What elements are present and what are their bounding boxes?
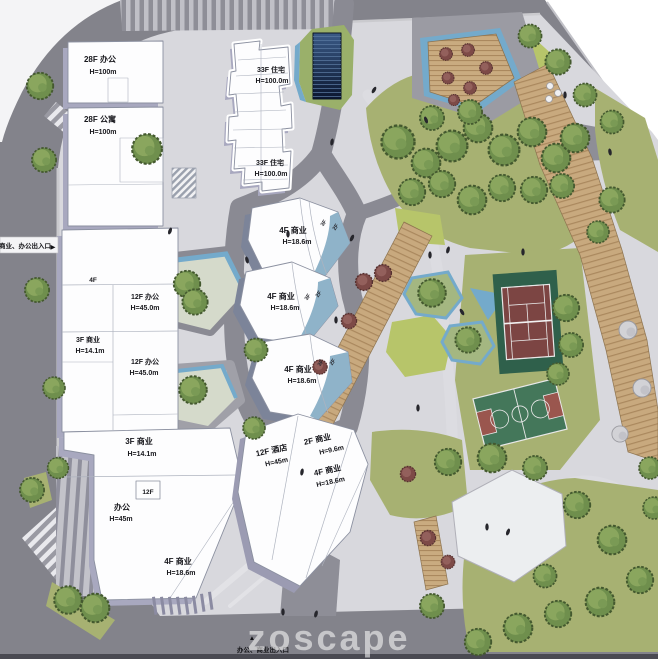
tree: [598, 526, 627, 555]
tree: [54, 586, 82, 614]
label-office-12f-b-line2: H=45.0m: [130, 370, 159, 377]
rock-cluster: [633, 379, 651, 397]
maroon-tree: [448, 94, 459, 105]
label-retail-hex-b-line2: H=18.6m: [271, 305, 300, 312]
glass-louvers: [313, 33, 341, 99]
tree: [564, 492, 590, 518]
tree: [533, 564, 556, 587]
tree: [437, 131, 468, 162]
tree: [244, 338, 267, 361]
tree: [478, 444, 507, 473]
master-plan-page: 28F 办公 H=100m 28F 公寓 H=100m 33F 住宅 H=100…: [0, 0, 658, 659]
label-apartment-28f-line2: H=100m: [89, 129, 116, 136]
label-office-28f-line2: H=100m: [89, 69, 116, 76]
label-retail-4f-south-line1: 4F 商业: [164, 556, 192, 566]
tree: [81, 594, 110, 623]
tree: [550, 174, 574, 198]
tree: [489, 135, 520, 166]
maroon-tree: [441, 555, 455, 569]
tree: [518, 24, 541, 47]
tree: [489, 175, 515, 201]
tree: [418, 279, 446, 307]
maroon-tree: [480, 62, 493, 75]
label-residential-33f-b-line2: H=100.0m: [255, 171, 288, 178]
label-retail-3f-b-line2: H=14.1m: [128, 451, 157, 458]
tree: [382, 126, 415, 159]
tree: [25, 278, 49, 302]
maroon-tree: [375, 265, 392, 282]
maroon-tree: [462, 44, 475, 57]
building-podium-офисы: [57, 228, 178, 438]
top-road-sidewalk-hatch: [120, 0, 345, 31]
label-retail-hex-c-line1: 4F 商业: [284, 364, 312, 374]
label-retail-hex-a-line1: 4F 商业: [279, 225, 307, 235]
tree: [458, 100, 482, 124]
label-retail-4f-south-line2: H=18.6m: [167, 570, 196, 577]
tree: [458, 186, 487, 215]
label-retail-hex-c-line2: H=18.6m: [288, 378, 317, 385]
label-retail-hex-b-line1: 4F 商业: [267, 291, 295, 301]
tree: [518, 118, 547, 147]
rock-cluster: [619, 321, 637, 339]
label-retail-3f-a-line2: H=14.1m: [76, 348, 105, 355]
maroon-tree: [440, 48, 453, 61]
building-apartment-28f: [63, 107, 163, 232]
label-residential-33f-a-line1: 33F 住宅: [257, 65, 285, 74]
label-retail-3f-b-line1: 3F 商业: [125, 436, 153, 446]
tree: [504, 614, 533, 643]
tree: [132, 134, 162, 164]
label-office-12f-a-line2: H=45.0m: [131, 305, 160, 312]
tree: [20, 478, 44, 502]
label-office-45m-line1: 办公: [114, 502, 130, 512]
tree: [559, 333, 583, 357]
maroon-tree: [356, 274, 373, 291]
entrance-left-arrow-icon: ▶: [51, 244, 56, 251]
label-retail-3f-a-line1: 3F 商业: [76, 335, 100, 344]
label-office-12f-a-line1: 12F 办公: [131, 292, 159, 301]
tree: [561, 124, 590, 153]
tree: [600, 110, 623, 133]
tree: [27, 73, 53, 99]
person-figure: [281, 608, 284, 615]
label-office-28f-line1: 28F 办公: [84, 54, 116, 64]
tree: [639, 457, 658, 479]
tree: [627, 567, 653, 593]
entrance-left-label: 商业、办公出入口: [0, 241, 51, 250]
tree: [435, 449, 461, 475]
tag-12f: 12F: [142, 489, 153, 496]
tree: [32, 148, 56, 172]
escalator: [172, 168, 196, 198]
person-figure: [521, 248, 524, 255]
person-figure: [485, 523, 488, 530]
watermark: zoscape: [247, 617, 410, 658]
tree: [545, 49, 570, 74]
person-figure: [416, 404, 419, 411]
tree: [521, 177, 547, 203]
tree: [429, 171, 455, 197]
tree: [420, 106, 444, 130]
label-office-45m-line2: H=45m: [109, 516, 132, 523]
building-footprint: [62, 228, 178, 432]
person-figure: [334, 316, 337, 323]
tree: [599, 187, 624, 212]
tennis-court: [493, 270, 564, 374]
tree: [643, 497, 658, 519]
maroon-tree: [464, 82, 477, 95]
tree: [243, 417, 265, 439]
tree: [523, 456, 547, 480]
person-figure: [563, 91, 566, 98]
tree: [420, 594, 444, 618]
maroon-tree: [400, 466, 415, 481]
tree: [545, 601, 571, 627]
tree: [43, 377, 65, 399]
tree: [455, 327, 480, 352]
master-plan-canvas: 28F 办公 H=100m 28F 公寓 H=100m 33F 住宅 H=100…: [0, 0, 658, 659]
building-footprint: [228, 41, 292, 191]
person-figure: [428, 251, 431, 258]
label-apartment-28f-line1: 28F 公寓: [84, 114, 116, 124]
tree: [573, 83, 596, 106]
round-seat: [547, 83, 554, 90]
tree: [465, 629, 491, 655]
label-residential-33f-a-line2: H=100.0m: [256, 78, 289, 85]
tree: [179, 376, 207, 404]
label-retail-hex-a-line2: H=18.6m: [283, 239, 312, 246]
maroon-tree: [442, 72, 454, 84]
label-office-12f-b-line1: 12F 办公: [131, 357, 159, 366]
building-footprint: [68, 107, 163, 226]
tree: [48, 458, 69, 479]
tree: [586, 588, 615, 617]
tree: [399, 179, 425, 205]
round-seat: [555, 90, 562, 97]
maroon-tree: [341, 313, 356, 328]
round-seat: [546, 96, 553, 103]
label-residential-33f-b-line1: 33F 住宅: [256, 158, 284, 167]
tree: [553, 295, 579, 321]
tree: [547, 363, 569, 385]
tag-4f: 4F: [89, 277, 97, 284]
maroon-tree: [420, 530, 435, 545]
rock-cluster: [612, 426, 628, 442]
tree: [182, 289, 207, 314]
tree: [587, 221, 609, 243]
